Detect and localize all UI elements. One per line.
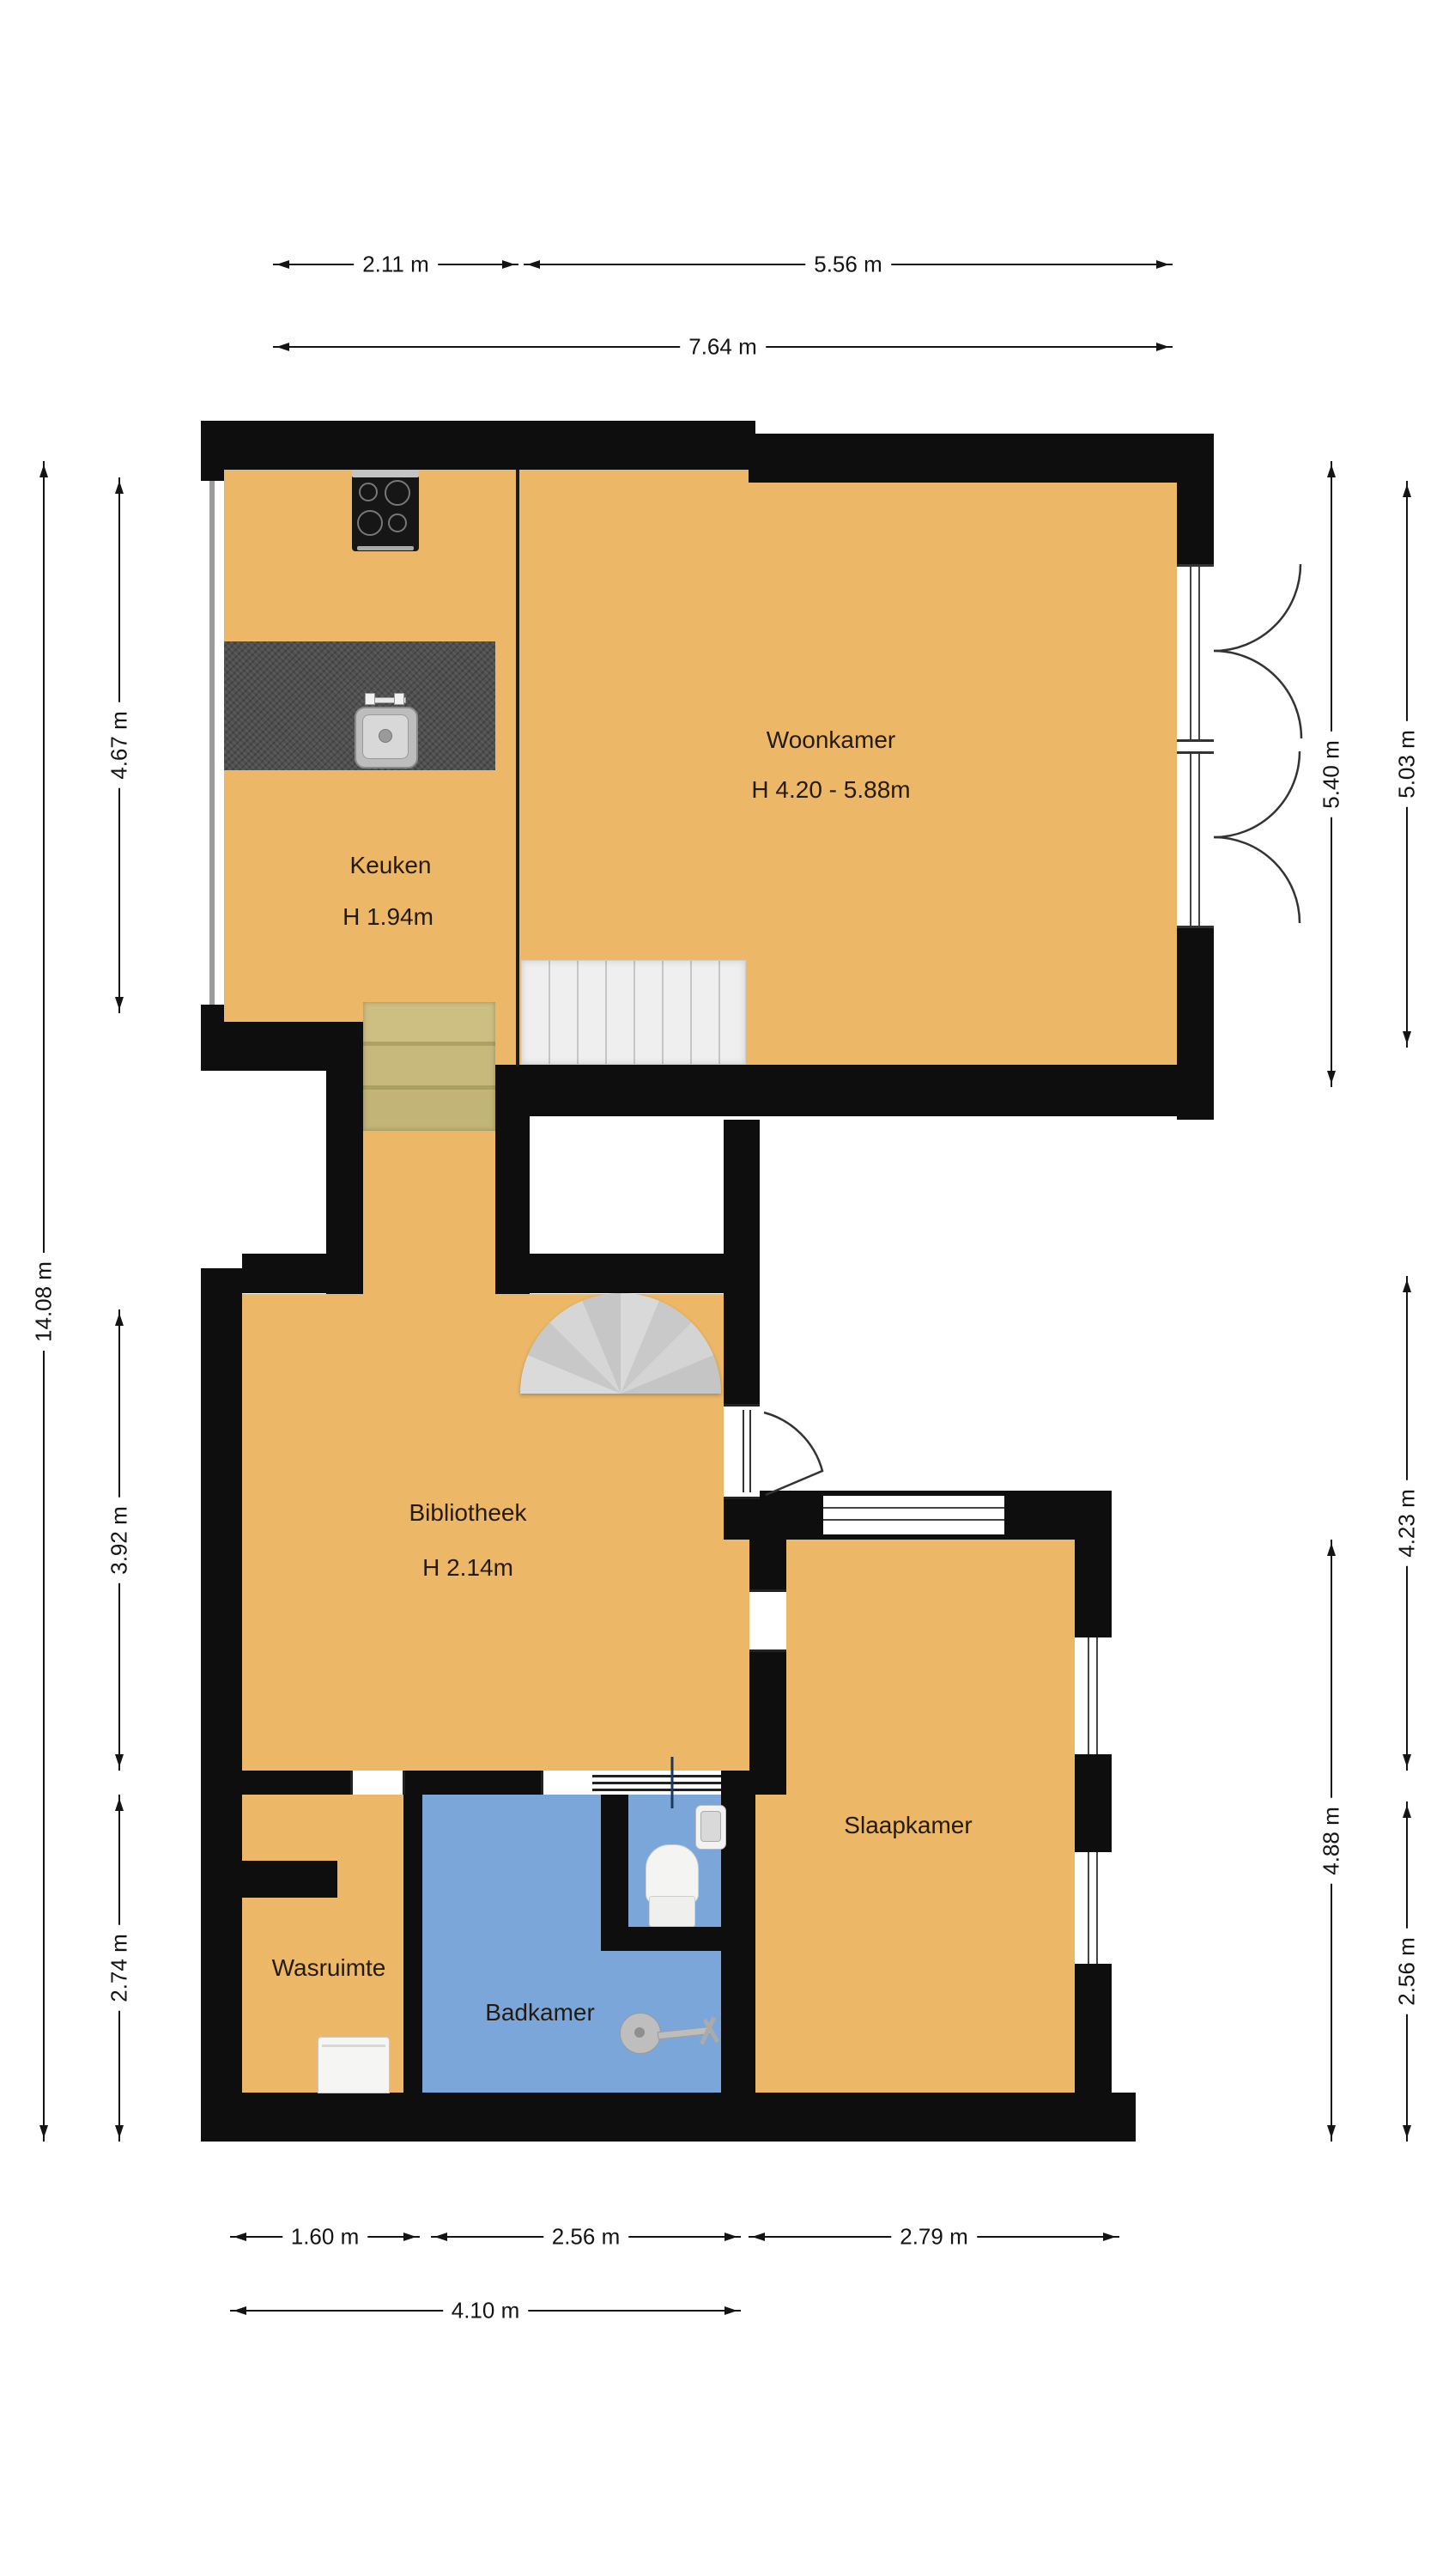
french-door-arc-1: [1214, 564, 1300, 651]
dim-left-total-label: 14.08 m: [29, 1253, 59, 1351]
dim-left-keuken-label: 4.67 m: [105, 702, 135, 788]
burner-3: [357, 510, 383, 536]
dim-top-keuken-label: 2.11 m: [354, 250, 438, 280]
dim-bottom-wasruimte-label: 1.60 m: [282, 2222, 368, 2252]
dim-top-woonkamer-label: 5.56 m: [805, 250, 891, 280]
washing-machine-icon: [318, 2037, 390, 2093]
dim-right-woonkamer-inner: 5.40 m: [1331, 461, 1332, 1087]
dim-bottom-badkamer: 2.56 m: [431, 2236, 741, 2238]
wall-woonkamer-right-top: [1177, 470, 1214, 564]
french-door-arc-2: [1214, 651, 1301, 738]
badkamer-label: Badkamer: [485, 2001, 595, 2025]
bibliotheek-label: Bibliotheek: [409, 1501, 527, 1525]
wall-bibliotheek-right: [724, 1120, 760, 1404]
shower-icon: [620, 2011, 723, 2054]
bibliotheek-height: H 2.14m: [422, 1556, 513, 1580]
dim-right-bibliotheek: 4.23 m: [1406, 1276, 1408, 1771]
wall-left-upper-corner: [201, 421, 224, 481]
dim-right-woonkamer-outer: 5.03 m: [1406, 481, 1408, 1048]
french-door-unit-bottom: [1177, 751, 1214, 928]
toilet-icon: [642, 1844, 704, 1929]
wall-toilet-niche-bottom: [601, 1927, 743, 1951]
dim-left-total: 14.08 m: [43, 461, 45, 2142]
sink-drain: [379, 729, 392, 743]
dim-bottom-total-label: 4.10 m: [443, 2296, 529, 2326]
dim-bottom-wasruimte: 1.60 m: [230, 2236, 420, 2238]
burner-2: [385, 480, 410, 506]
slaapkamer-window-2-icon: [1075, 1852, 1112, 1964]
woonkamer-height: H 4.20 - 5.88m: [751, 778, 910, 802]
stove-icon: [352, 472, 419, 551]
stove-panel: [352, 471, 419, 477]
dim-top-keuken: 2.11 m: [273, 264, 518, 265]
badkamer-window-icon: [592, 1771, 721, 1795]
bibliotheek-door-swing: [764, 1413, 822, 1495]
dim-right-badkamer-label: 2.56 m: [1392, 1929, 1422, 2014]
dim-bottom-slaapkamer-label: 2.79 m: [891, 2222, 977, 2252]
dim-top-woonkamer: 5.56 m: [524, 264, 1173, 265]
french-door-unit-top: [1177, 564, 1214, 742]
bibliotheek-door-gap: [724, 1404, 760, 1499]
dim-top-total-label: 7.64 m: [680, 332, 766, 362]
badkamer-door-gap: [541, 1771, 597, 1795]
dim-left-wasruimte: 2.74 m: [118, 1795, 120, 2142]
dim-bottom-badkamer-label: 2.56 m: [543, 2222, 629, 2252]
faucet-handle-left: [365, 693, 375, 705]
slaapkamer-label: Slaapkamer: [844, 1814, 972, 1838]
wall-woonkamer-bottom: [498, 1065, 1214, 1116]
dim-bottom-total: 4.10 m: [230, 2310, 741, 2312]
keuken-label: Keuken: [350, 854, 432, 878]
dim-right-slaapkamer: 4.88 m: [1331, 1540, 1332, 2142]
dim-bottom-slaapkamer: 2.79 m: [749, 2236, 1119, 2238]
bathroom-sink-icon: [695, 1805, 726, 1850]
burner-1: [359, 483, 378, 501]
staircase-icon: [521, 960, 746, 1065]
burner-4: [388, 513, 407, 532]
dim-left-bibliotheek-label: 3.92 m: [105, 1498, 135, 1583]
faucet-handle-right: [394, 693, 404, 705]
wall-top-left: [201, 421, 755, 470]
keuken-height: H 1.94m: [343, 905, 433, 929]
slaapkamer-window-1-icon: [1075, 1637, 1112, 1754]
dim-right-slaapkamer-label: 4.88 m: [1317, 1798, 1347, 1884]
wall-bottom-exterior: [201, 2093, 1136, 2142]
woonkamer-label: Woonkamer: [767, 728, 895, 752]
shower-head-dot: [634, 2027, 645, 2038]
french-door-arc-3: [1214, 751, 1300, 837]
wall-lower-left-exterior: [201, 1268, 242, 2142]
faucet-icon: [365, 693, 404, 705]
dim-right-badkamer: 2.56 m: [1406, 1801, 1408, 2142]
sink-icon: [355, 707, 418, 769]
dim-top-total: 7.64 m: [273, 346, 1173, 348]
toilet-tank: [649, 1896, 695, 1927]
wall-wasruimte-badkamer: [403, 1795, 422, 2093]
dim-left-wasruimte-label: 2.74 m: [105, 1925, 135, 2011]
stove-handle: [357, 546, 414, 550]
floor-plan: Woonkamer H 4.20 - 5.88m Keuken H 1.94m …: [0, 0, 1449, 2576]
wasruimte-label: Wasruimte: [272, 1956, 386, 1980]
wall-bibliotheek-top-left: [242, 1254, 363, 1293]
wall-slaapkamer-right-1: [1075, 1491, 1112, 1637]
wall-bibliotheek-top-right: [495, 1254, 760, 1293]
wasruimte-door-gap: [350, 1771, 405, 1795]
wall-slaapkamer-right-2: [1075, 1754, 1112, 1852]
bathroom-sink-basin: [700, 1811, 721, 1842]
dim-left-keuken: 4.67 m: [118, 477, 120, 1013]
dim-right-woonkamer-inner-label: 5.40 m: [1317, 732, 1347, 817]
slaapkamer-door-gap: [749, 1589, 786, 1652]
wooden-steps-icon: [363, 1002, 495, 1131]
dim-right-bibliotheek-label: 4.23 m: [1392, 1480, 1422, 1566]
keuken-woonkamer-divider: [516, 470, 519, 1066]
french-door-arc-4: [1214, 837, 1300, 923]
wall-keuken-bottom: [201, 1022, 366, 1071]
dim-left-bibliotheek: 3.92 m: [118, 1309, 120, 1771]
left-glass-wall-icon: [209, 481, 215, 1005]
dim-right-woonkamer-outer-label: 5.03 m: [1392, 721, 1422, 807]
slaapkamer-top-window-icon: [823, 1496, 1004, 1534]
wall-top-right: [749, 434, 1214, 483]
washing-machine-panel: [322, 2044, 385, 2047]
wall-wasruimte-stub: [242, 1861, 337, 1898]
